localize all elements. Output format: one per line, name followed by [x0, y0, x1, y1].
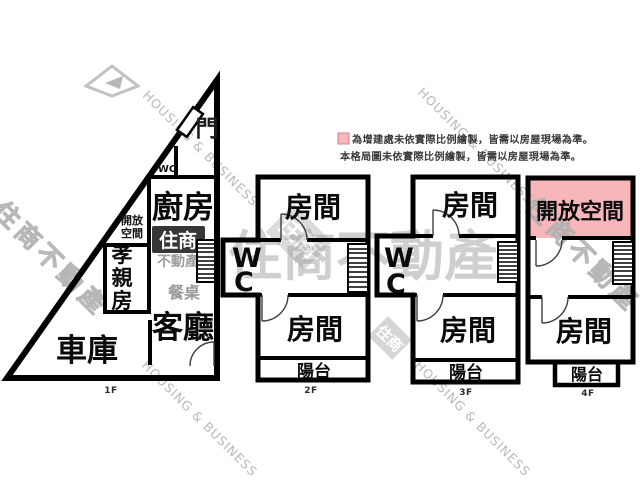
addition-legend-swatch	[338, 133, 349, 144]
wc-label-2f: C	[234, 267, 254, 298]
floor2-label: 2F	[304, 386, 317, 396]
brand-diamond-icon	[86, 66, 138, 96]
room-label: 房間	[442, 189, 498, 222]
brand-logo-tile: 住商	[368, 316, 412, 360]
stairs-4f	[613, 242, 633, 284]
floorplan-canvas: HOUSING & BUSINESS HOUSING & BUSINESS HO…	[0, 0, 640, 480]
balcony-label: 陽台	[449, 362, 483, 383]
stairs-1f	[197, 240, 215, 282]
living-room-label: 客廳	[152, 310, 214, 346]
balcony-label: 陽台	[571, 365, 603, 384]
balcony-label: 陽台	[297, 361, 331, 382]
open-space-label-line2: 空間	[121, 226, 143, 240]
garage-label: 車庫	[56, 333, 118, 369]
floor4-label: 4F	[581, 389, 594, 399]
stairs-3f	[498, 242, 518, 282]
parents-room-label: 孝	[112, 243, 133, 267]
parents-room-label: 房	[112, 289, 133, 313]
stairs-2f	[348, 244, 368, 292]
brand-logo-text: 住商	[159, 229, 197, 252]
disclaimer-line2: 本格局圖未依實際比例繪製，皆需以房屋現場為準。	[340, 150, 581, 163]
parents-room-label: 親	[112, 266, 133, 290]
open-space-label-4f: 開放空間	[536, 199, 624, 225]
open-space-label-line1: 開放	[121, 213, 144, 227]
brand-logo-subtext: 不動產	[157, 253, 199, 270]
floor1-label: 1F	[104, 386, 117, 396]
kitchen-label: 廚房	[152, 190, 214, 226]
wc-label-3f: C	[386, 269, 406, 300]
floorplan-svg: HOUSING & BUSINESS HOUSING & BUSINESS HO…	[0, 0, 640, 480]
disclaimer-line1: 為增建處未依實際比例繪製，皆需以房屋現場為準。	[351, 133, 593, 146]
dining-table-label: 餐桌	[167, 283, 200, 302]
door-label: 門	[196, 116, 219, 142]
disclaimer-block: 為增建處未依實際比例繪製，皆需以房屋現場為準。 本格局圖未依實際比例繪製，皆需以…	[338, 133, 593, 163]
wc-label-1f: WC	[158, 164, 176, 175]
room-label: 房間	[440, 314, 496, 347]
room-label: 房間	[285, 191, 341, 224]
floor3-label: 3F	[459, 388, 472, 398]
room-label: 房間	[556, 315, 612, 348]
room-label: 房間	[287, 313, 343, 346]
